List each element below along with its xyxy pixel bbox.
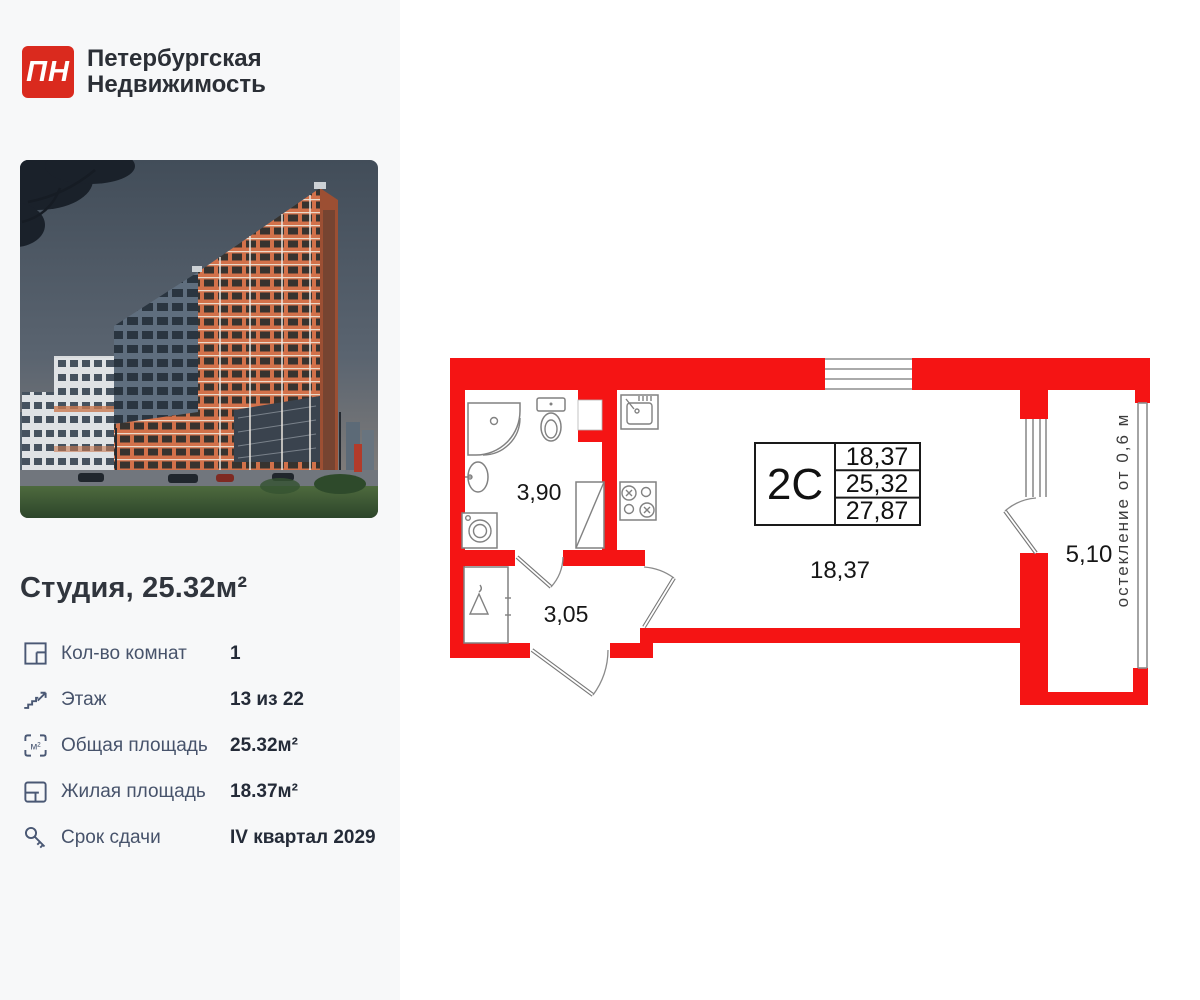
detail-value: IV квартал 2029 [230,827,376,849]
building-photo [20,160,378,518]
living-area-icon [22,778,49,805]
detail-value: 1 [230,643,241,665]
detail-label: Срок сдачи [61,827,161,849]
room-label-bathroom: 3,90 [517,479,562,505]
bathroom-door [517,557,563,587]
floor-plan-drawing: 2С 18,37 25,32 27,87 3,90 3,05 18,37 5,1… [440,345,1155,713]
info-living-area: 18,37 [846,443,909,471]
kitchen-sink [621,395,658,429]
vent-niche [578,400,602,430]
total-area-icon: м² [22,732,49,759]
detail-row-total-area: м² Общая площадь 25.32м² [22,732,382,759]
brand-name-line1: Петербургская [87,46,266,72]
balcony-glazing [1138,403,1147,668]
left-panel: ПН Петербургская Недвижимость [0,0,400,1000]
room-label-living: 18,37 [810,557,870,584]
room-label-balcony: 5,10 [1066,541,1113,568]
washbasin [465,462,488,492]
detail-label: Кол-во комнат [61,643,187,665]
floor-plan: 2С 18,37 25,32 27,87 3,90 3,05 18,37 5,1… [440,345,1155,713]
building-illustration [20,160,378,518]
listing-page: ПН Петербургская Недвижимость [0,0,1200,1000]
detail-label: Общая площадь [61,735,208,757]
detail-value: 18.37м² [230,781,298,803]
top-window [825,358,912,390]
shower-tray [468,403,520,455]
room-label-hallway: 3,05 [544,601,589,627]
stairs-icon [22,686,49,713]
brand-logo: ПН Петербургская Недвижимость [22,46,266,98]
detail-row-floor: Этаж 13 из 22 [22,686,382,713]
brand-name: Петербургская Недвижимость [87,46,266,98]
page-title: Студия, 25.32м² [20,572,247,605]
brand-logo-icon: ПН [22,46,74,98]
wardrobe [464,567,511,643]
rooms-icon [22,640,49,667]
detail-row-rooms: Кол-во комнат 1 [22,640,382,667]
utility-cabinet [576,482,604,548]
detail-value: 25.32м² [230,735,298,757]
details-list: Кол-во комнат 1 Этаж 13 из 22 м² [22,640,382,851]
info-total-area: 25,32 [846,470,909,498]
detail-label: Этаж [61,689,106,711]
room-door [644,567,674,627]
area-unit-glyph: м² [30,741,41,752]
brand-name-line2: Недвижимость [87,72,266,98]
detail-row-living-area: Жилая площадь 18.37м² [22,778,382,805]
detail-label: Жилая площадь [61,781,206,803]
toilet [537,398,565,441]
detail-row-completion: Срок сдачи IV квартал 2029 [22,824,382,851]
washing-machine [462,513,497,548]
balcony-door [1005,498,1036,553]
unit-type-label: 2С [767,460,823,509]
balcony-door-window [1025,419,1047,497]
detail-value: 13 из 22 [230,689,304,711]
stove [620,482,656,520]
info-full-area: 27,87 [846,497,909,525]
entrance-door [532,650,608,695]
key-icon [22,824,49,851]
glazing-note: остекление от 0,6 м [1113,413,1132,608]
unit-info-box: 2С 18,37 25,32 27,87 [755,443,920,525]
brand-monogram: ПН [26,56,70,89]
